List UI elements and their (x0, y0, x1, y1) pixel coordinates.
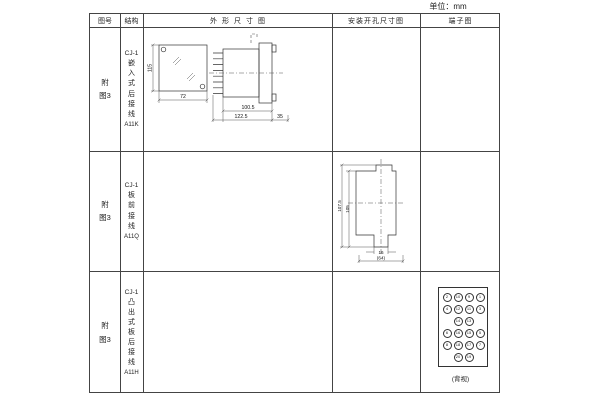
front-view (159, 45, 207, 91)
mounting-svg-row1: 107.5 105 16 (64) (332, 151, 420, 275)
mounting-drawing-row1: 107.5 105 16 (64) (332, 151, 420, 275)
unit-label: 单位：mm (392, 1, 504, 12)
terminal-11: 11 (465, 305, 474, 314)
terminal-2: 2 (443, 293, 452, 302)
figure-number: 附图3 (99, 198, 111, 225)
terminal-7: 7 (476, 341, 485, 350)
structure-cell-row3: CJ-1 凸出式板后接线 A11H (120, 271, 143, 394)
header-terminal: 端子图 (420, 14, 501, 27)
cutout-profile (348, 159, 404, 255)
outline-svg-row1: 115 72 100.5 122.5 (143, 27, 332, 151)
outline-drawing-row1: 115 72 100.5 122.5 (143, 27, 332, 151)
header-outline: 外形尺寸图 (143, 14, 332, 27)
dim-front: 115 72 (148, 44, 209, 103)
terminal-10: 10 (454, 293, 463, 302)
terminal-drawing-row1: 2109141211314136161558181772019 (背视) (420, 275, 501, 399)
structure-code: A11Q (124, 234, 139, 240)
terminal-20: 20 (454, 353, 463, 362)
terminal-13: 13 (465, 317, 474, 326)
terminal-17: 17 (465, 341, 474, 350)
dim-105: 105 (345, 205, 350, 213)
structure-cell-row2: CJ-1 板前接线 A11Q (120, 151, 143, 271)
relay-model: CJ-1 (125, 289, 139, 296)
terminal-18: 18 (454, 341, 463, 350)
terminal-9: 9 (465, 293, 474, 302)
dim-115: 115 (148, 64, 154, 72)
header-mounting: 安装开孔尺寸图 (332, 14, 420, 27)
terminal-19: 19 (465, 353, 474, 362)
page: 单位：mm 图号 结构 外形尺寸图 安装开孔尺寸图 端子图 附图3 CJ-1 嵌… (0, 0, 600, 400)
dim-107-5: 107.5 (337, 200, 342, 212)
terminal-15: 15 (465, 329, 474, 338)
grid-line (90, 271, 499, 272)
terminal-16: 16 (454, 329, 463, 338)
dims: 107.5 105 16 (64) (337, 164, 404, 263)
terminal-1: 1 (476, 293, 485, 302)
figure-number: 附图3 (99, 319, 111, 346)
terminal-5: 5 (476, 329, 485, 338)
structure-name: 凸出式板后接线 (127, 298, 136, 369)
terminal-3: 3 (476, 305, 485, 314)
relay-model: CJ-1 (125, 182, 139, 189)
structure-code: A11H (124, 370, 139, 376)
dim-side: 100.5 122.5 35 (212, 95, 290, 122)
figure-cell-row3: 附图3 (90, 271, 120, 394)
terminal-4: 4 (443, 305, 452, 314)
dim-16: 16 (378, 250, 384, 255)
grid-line (90, 151, 499, 152)
structure-name: 板前接线 (127, 191, 136, 232)
header-structure: 结构 (120, 14, 143, 27)
terminal-8: 8 (443, 341, 452, 350)
view-label: (背视) (420, 373, 501, 383)
header-figure: 图号 (90, 14, 120, 27)
figure-cell-row2: 附图3 (90, 151, 120, 271)
dim-122-5: 122.5 (235, 114, 248, 120)
spec-table: 图号 结构 外形尺寸图 安装开孔尺寸图 端子图 附图3 CJ-1 嵌入式后接线 … (89, 13, 500, 393)
structure-code: A11K (124, 122, 138, 128)
terminal-12: 12 (454, 305, 463, 314)
dim-100-5: 100.5 (242, 105, 255, 111)
terminal-14: 14 (454, 317, 463, 326)
relay-model: CJ-1 (125, 50, 139, 57)
dim-35: 35 (277, 114, 283, 120)
structure-cell-row1: CJ-1 嵌入式后接线 A11K (120, 27, 143, 151)
terminal-6: 6 (443, 329, 452, 338)
dim-64: (64) (377, 256, 386, 261)
side-view (209, 34, 283, 103)
figure-number: 附图3 (99, 76, 111, 103)
structure-name: 嵌入式后接线 (127, 59, 136, 120)
figure-cell-row1: 附图3 (90, 27, 120, 151)
dim-72: 72 (180, 94, 186, 100)
